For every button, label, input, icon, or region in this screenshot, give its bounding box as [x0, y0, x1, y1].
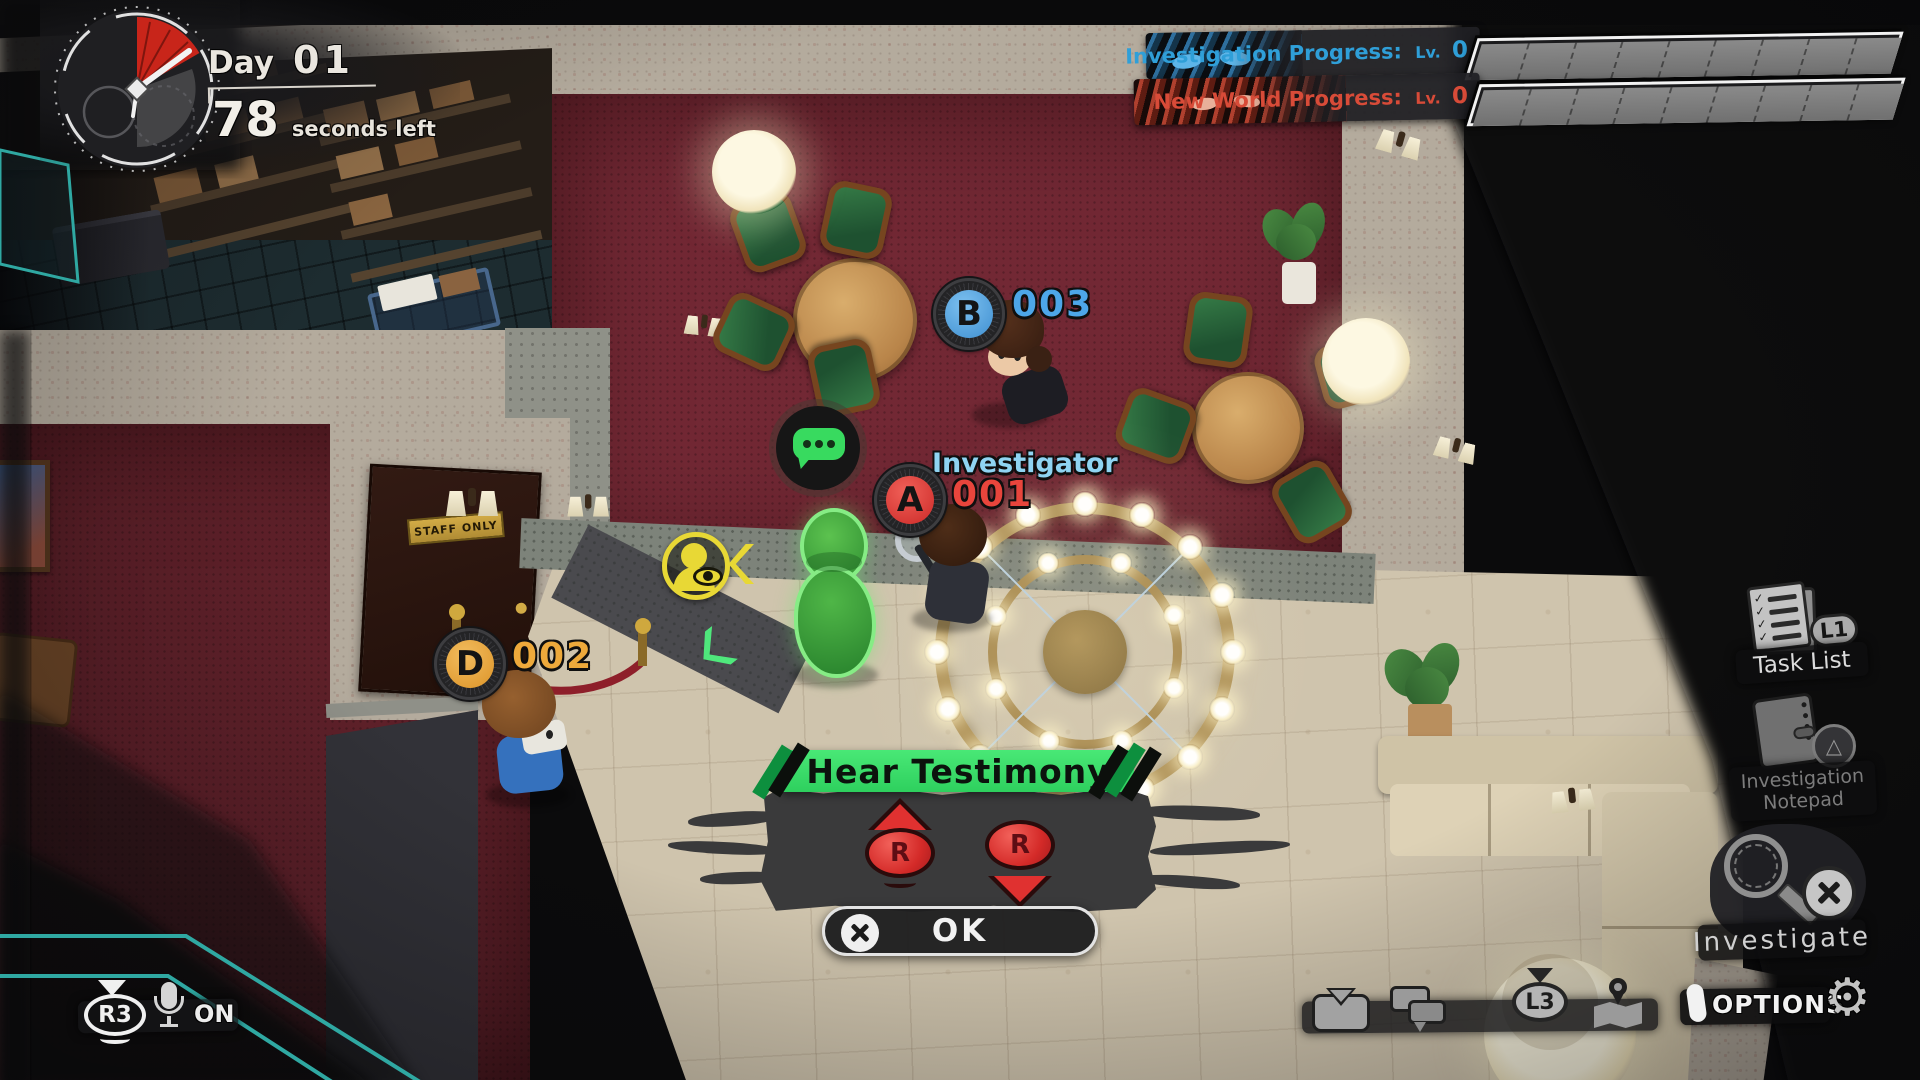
investigation-notepad-button[interactable]: △ Investigation Notepad [1730, 692, 1880, 822]
investigation-progress-bar [1462, 29, 1901, 78]
day-clock-icon [52, 4, 222, 174]
pickup-icon[interactable] [1310, 980, 1372, 1032]
task-list-button[interactable]: ✓ ✓ ✓ ✓ L1 Task List [1736, 580, 1876, 690]
investigation-level-value: 0 [1452, 37, 1469, 63]
map-icon[interactable] [1592, 978, 1646, 1030]
r3-button-icon: R3 [84, 994, 146, 1036]
investigation-progress-label: Investigation Progress: [1125, 39, 1402, 68]
r-stick-down-prompt[interactable]: R [982, 820, 1058, 908]
day-timer: Day 01 78 seconds left [40, 0, 460, 180]
notepad-label-line2: Notepad [1763, 789, 1845, 815]
eavesdrop-indicator [662, 532, 730, 600]
ok-button[interactable]: OK [822, 906, 1098, 956]
speech-bubble-indicator [776, 406, 860, 490]
magnifier-icon [1724, 834, 1788, 898]
character-badge-b: B [933, 278, 1005, 350]
badge-letter: B [956, 294, 982, 334]
r-stick-up-prompt[interactable]: R [862, 798, 938, 886]
new-world-progress-row: New World Progress: Lv. 0 [1134, 73, 1481, 126]
task-list-label: Task List [1753, 647, 1852, 680]
seconds-value: 78 [212, 92, 279, 148]
bottom-icon-strip: L3 [1296, 960, 1676, 1040]
badge-letter: A [897, 480, 923, 520]
investigation-progress-row: Investigation Progress: Lv. 0 [1146, 27, 1481, 79]
investigate-button[interactable]: Investigate [1698, 822, 1878, 962]
mic-status: ON [194, 1000, 235, 1028]
options-button[interactable]: OPTIONS ⚙ [1672, 966, 1872, 1036]
game-screen: STAFF ONLY [0, 0, 1920, 1080]
character-badge-d: D [434, 628, 506, 700]
voice-chat-widget[interactable]: R3 ON [70, 974, 260, 1044]
gear-icon: ⚙ [1824, 968, 1871, 1028]
character-id-a: 001 [952, 474, 1033, 515]
badge-letter: D [456, 644, 484, 684]
new-world-progress-bar [1464, 75, 1903, 124]
new-world-level-value: 0 [1452, 83, 1469, 109]
progress-bar-fill [1473, 84, 1904, 127]
character-id-b: 003 [1012, 284, 1093, 325]
task-list-icon: ✓ ✓ ✓ ✓ [1746, 581, 1812, 654]
character-id-d: 002 [512, 636, 593, 677]
ok-label: OK [932, 913, 988, 949]
investigate-label: Investigate [1692, 922, 1871, 958]
cross-button-icon [841, 914, 879, 952]
stick-letter: R [890, 838, 910, 868]
cross-button-badge [1802, 866, 1856, 920]
character-badge-a: A [874, 464, 946, 536]
chat-log-icon[interactable] [1390, 984, 1450, 1030]
microphone-icon [154, 982, 184, 1034]
action-title-banner: Hear Testimony [782, 750, 1134, 792]
person-silhouette-icon [681, 543, 707, 569]
l3-button-icon[interactable]: L3 [1508, 968, 1572, 1034]
day-label: Day [208, 45, 274, 81]
progress-bar-fill [1471, 38, 1902, 81]
level-label: Lv. [1415, 43, 1441, 62]
action-title: Hear Testimony [806, 752, 1109, 791]
action-panel [760, 786, 1156, 912]
new-world-progress-label: New World Progress: [1153, 85, 1402, 114]
stick-letter: R [1010, 830, 1030, 860]
day-number: 01 [293, 38, 354, 82]
level-label: Lv. [1415, 88, 1441, 107]
seconds-label: seconds left [292, 117, 436, 141]
notepad-icon [1751, 692, 1820, 770]
chat-bubble-icon [793, 428, 845, 460]
